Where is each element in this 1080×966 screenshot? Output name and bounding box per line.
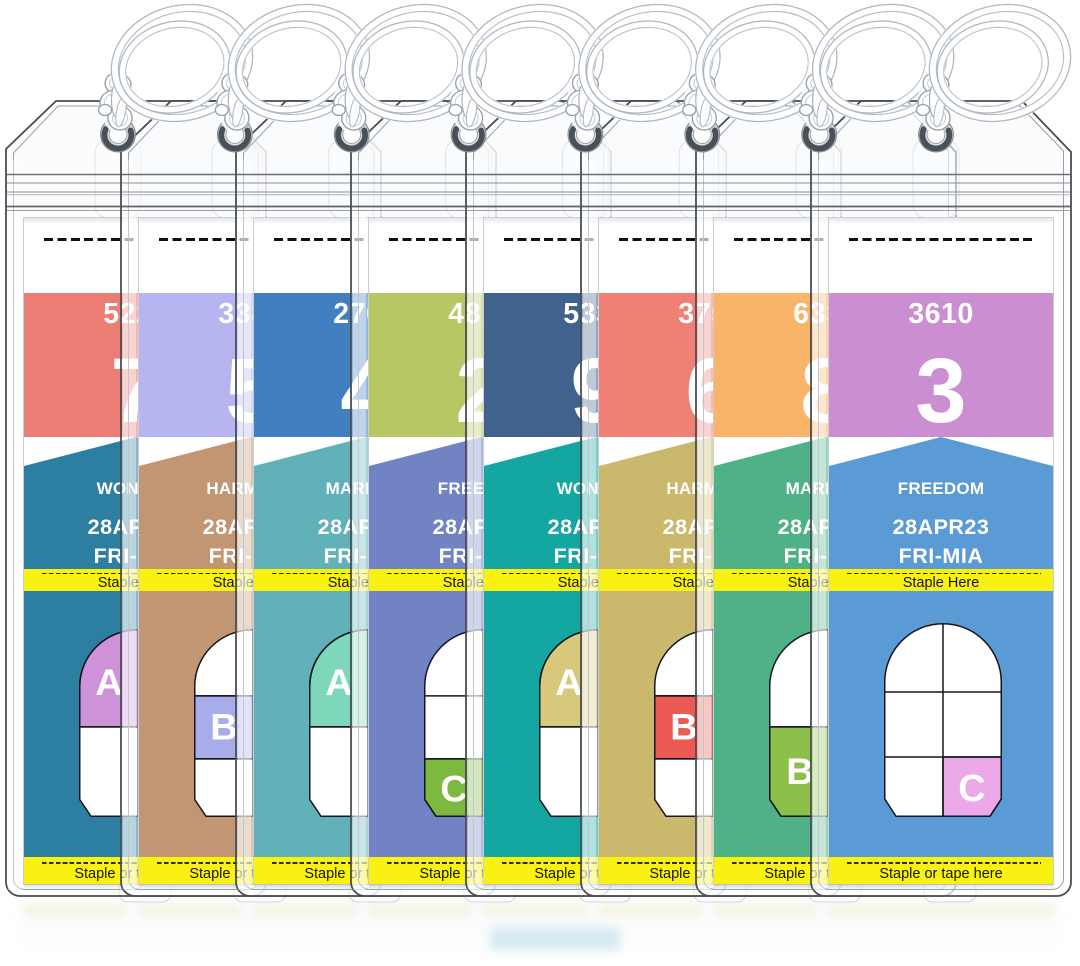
svg-text:C: C bbox=[440, 768, 467, 809]
svg-text:A: A bbox=[325, 661, 352, 702]
svg-text:A: A bbox=[95, 661, 122, 702]
svg-text:B: B bbox=[670, 706, 697, 747]
svg-text:C: C bbox=[958, 768, 985, 810]
svg-text:A: A bbox=[555, 661, 582, 702]
svg-text:B: B bbox=[210, 706, 237, 747]
